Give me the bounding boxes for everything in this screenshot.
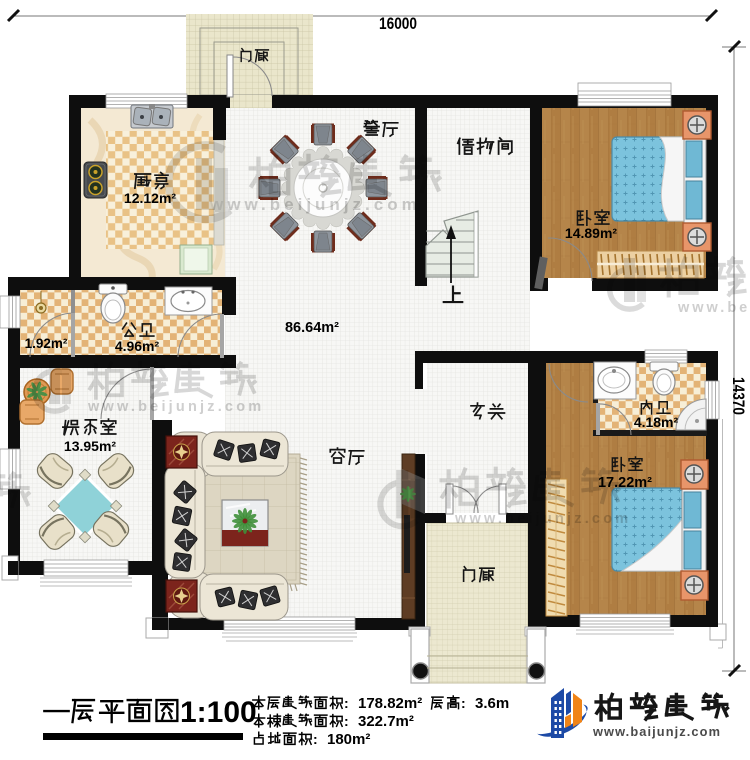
- svg-text:322.7m²: 322.7m²: [358, 713, 414, 730]
- svg-text:1:100: 1:100: [180, 696, 257, 729]
- svg-text::: :: [461, 695, 466, 711]
- svg-text:www.beijunjz.com: www.beijunjz.com: [677, 300, 750, 316]
- svg-text::: :: [344, 713, 349, 729]
- svg-text:178.82m²: 178.82m²: [358, 695, 422, 712]
- svg-text:14.89m²: 14.89m²: [565, 225, 617, 241]
- svg-text:4.96m²: 4.96m²: [115, 338, 160, 354]
- svg-text:14370: 14370: [729, 377, 748, 415]
- svg-text:12.12m²: 12.12m²: [124, 190, 176, 206]
- svg-text:4.18m²: 4.18m²: [634, 414, 679, 430]
- svg-text:17.22m²: 17.22m²: [598, 475, 652, 491]
- svg-text:www.beijunjz.com: www.beijunjz.com: [209, 195, 421, 214]
- svg-text:86.64m²: 86.64m²: [285, 320, 339, 336]
- svg-text:16000: 16000: [379, 14, 417, 33]
- svg-text::: :: [313, 731, 318, 747]
- svg-text:www.beijunjz.com: www.beijunjz.com: [454, 511, 631, 527]
- svg-text:3.6m: 3.6m: [475, 695, 509, 712]
- svg-text::: :: [344, 695, 349, 711]
- svg-text:180m²: 180m²: [327, 731, 370, 748]
- svg-text:www.beijunjz.com: www.beijunjz.com: [87, 399, 264, 415]
- svg-text:1.92m²: 1.92m²: [25, 336, 68, 351]
- svg-text:www.baijunjz.com: www.baijunjz.com: [592, 724, 721, 739]
- svg-text:13.95m²: 13.95m²: [64, 438, 116, 454]
